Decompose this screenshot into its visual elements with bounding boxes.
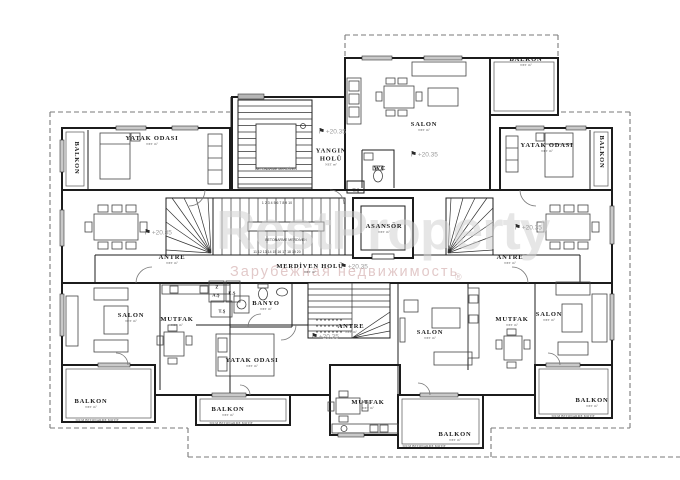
fire-stair <box>238 94 312 188</box>
room-label-closet-es: E.Ş <box>228 290 235 295</box>
fire-stair-note: BETONARME MERDİVEN <box>255 166 297 171</box>
room-label-yatak-odasi-top-right: YATAK ODASINET m² <box>521 142 574 154</box>
elevation-marker: ⚑+20.35 <box>410 150 438 159</box>
room-label-balkon-bottom-left: BALKONNET m² <box>75 398 108 410</box>
elevation-marker: ⚑+20.35 <box>311 332 339 341</box>
room-label-yangin-holu: YANGIN HOLÜNET m² <box>308 147 354 166</box>
elevation-marker: ⚑+20.35 <box>144 228 172 237</box>
level-flag-icon: ⚑ <box>410 150 417 159</box>
room-label-ts-upper: T.Ş <box>353 187 360 192</box>
elevation-marker: ⚑+20.35 <box>514 223 542 232</box>
balcony-note: 30CM BETONARME MOTİF <box>551 414 594 418</box>
room-label-salon-bottom: SALONNET m² <box>417 329 443 341</box>
room-label-balkon-top-left: BALKON <box>72 142 80 175</box>
room-label-mutfak-left: MUTFAKNET m² <box>160 316 193 328</box>
room-label-balkon-top-right: BALKONNET m² <box>510 56 543 68</box>
room-label-balkon-right: BALKON <box>597 136 605 169</box>
balcony-note: 30CM BETONARME MOTİF <box>402 444 445 448</box>
room-label-banyo: BANYONET m² <box>252 300 279 312</box>
level-flag-icon: ⚑ <box>144 228 151 237</box>
room-label-balkon-bottom-right: BALKONNET m² <box>576 397 609 409</box>
room-label-yatak-odasi-bottom: YATAK ODASINET m² <box>226 357 279 369</box>
elevation-marker: ⚑+20.35 <box>340 262 368 271</box>
room-label-mutfak-bottom: MUTFAKNET m² <box>351 399 384 411</box>
room-label-mutfak-right: MUTFAKNET m² <box>495 316 528 328</box>
room-label-closet-as: A.Ş <box>212 292 219 297</box>
room-label-antre-bottom: ANTRENET m² <box>338 323 365 335</box>
room-label-salon-top: SALONNET m² <box>411 121 437 133</box>
room-label-balkon-bottom-center: BALKONNET m² <box>439 431 472 443</box>
room-label-antre-left: ANTRENET m² <box>159 254 186 266</box>
winder-stair-left <box>166 198 213 255</box>
balcony-note: 30CM BETONARME MOTİF <box>75 418 118 422</box>
room-label-asansor: ASANSÖRNET m² <box>366 223 403 235</box>
level-flag-icon: ⚑ <box>340 262 347 271</box>
floor-plan-page: 1 2 3 4 5 6 7 8 9 10 11 12 13 14 15 16 1… <box>0 0 680 480</box>
room-label-yatak-odasi-top-left: YATAK ODASINET m² <box>126 135 179 147</box>
elevation-marker: ⚑+20.35 <box>318 127 346 136</box>
room-label-wc: WC <box>374 165 387 173</box>
level-flag-icon: ⚑ <box>311 332 318 341</box>
room-label-closet-ts: T.Ş <box>219 308 226 313</box>
room-label-salon-right: SALONNET m² <box>536 311 562 323</box>
level-flag-icon: ⚑ <box>514 223 521 232</box>
level-flag-icon: ⚑ <box>318 127 325 136</box>
room-label-antre-right: ANTRENET m² <box>497 254 524 266</box>
balcony-note: 30CM BETONARME MOTİF <box>209 421 252 425</box>
room-label-salon-left: SALONNET m² <box>118 312 144 324</box>
room-label-balkon-bottom-center-left: BALKONNET m² <box>212 406 245 418</box>
room-label-merdiven-holu: MERDİVEN HOLÜNET m² <box>276 263 343 275</box>
room-label-closet-z: Z <box>215 284 218 289</box>
